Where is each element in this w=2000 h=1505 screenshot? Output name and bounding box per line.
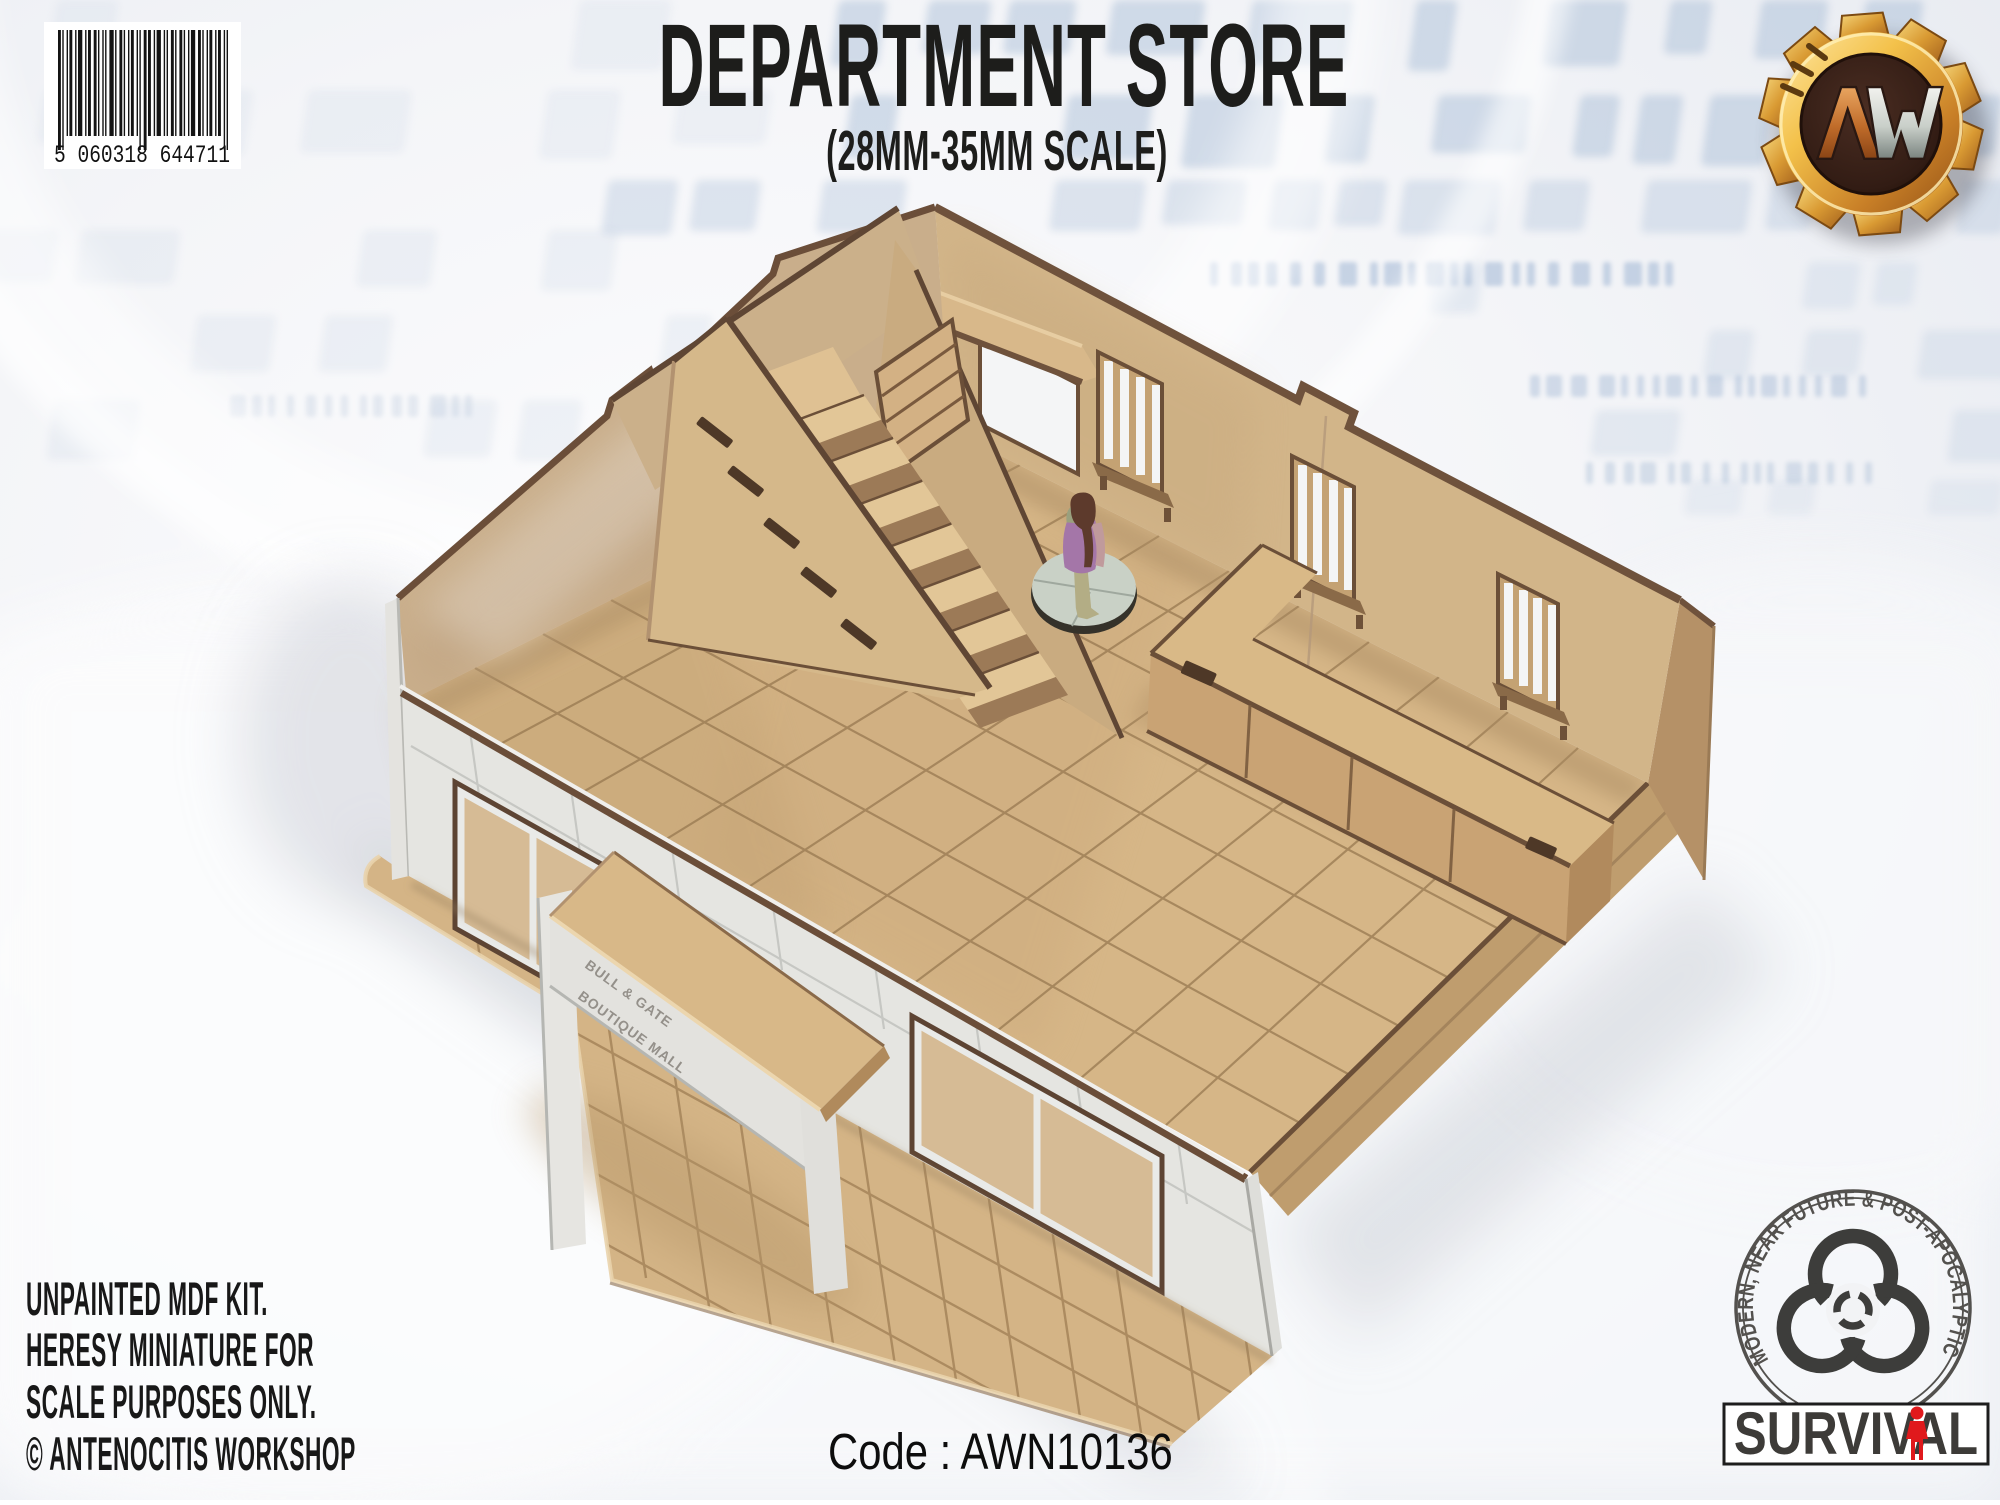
- svg-text:Code : AWN10136: Code : AWN10136: [828, 1423, 1173, 1480]
- svg-text:(28MM-35MM SCALE): (28MM-35MM SCALE): [826, 118, 1168, 182]
- svg-text:5 060318 644711: 5 060318 644711: [54, 141, 230, 170]
- svg-text:SURVIVAL: SURVIVAL: [1734, 1399, 1978, 1467]
- svg-text:© ANTENOCITIS WORKSHOP: © ANTENOCITIS WORKSHOP: [26, 1428, 356, 1480]
- svg-text:DEPARTMENT STORE: DEPARTMENT STORE: [658, 0, 1349, 132]
- svg-text:UNPAINTED MDF KIT.: UNPAINTED MDF KIT.: [26, 1273, 268, 1325]
- svg-text:HERESY MINIATURE FOR: HERESY MINIATURE FOR: [26, 1324, 314, 1376]
- svg-text:SCALE PURPOSES ONLY.: SCALE PURPOSES ONLY.: [26, 1376, 317, 1428]
